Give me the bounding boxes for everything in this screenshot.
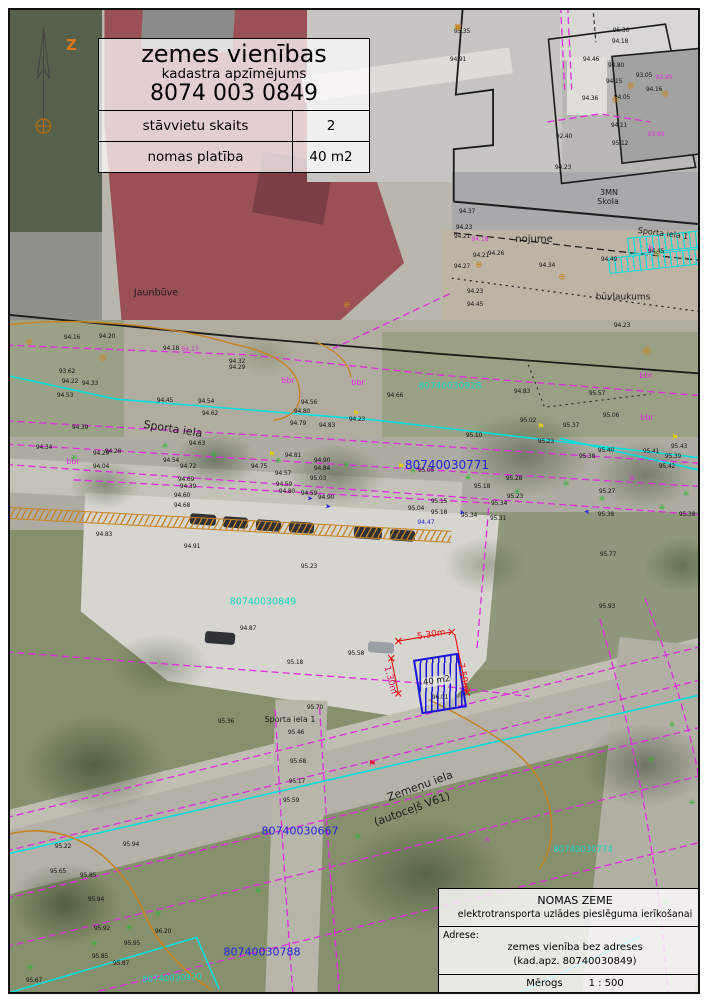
elevation-label: 94.81 [285,453,301,459]
elevation-label: 95.18 [431,510,447,516]
elevation-label: 95.23 [301,564,317,570]
elevation-label: 94.27 [454,264,470,270]
elevation-label: 95.77 [600,552,616,558]
elevation-label: 94.46 [583,57,599,63]
elevation-label: 94.26 [488,251,504,257]
street-label: nojume [515,235,552,245]
elevation-label: 95.46 [288,730,304,736]
elevation-label: 94.54 [198,399,214,405]
elevation-label: 94.45 [467,302,483,308]
elevation-label: 94.80 [294,409,310,415]
survey-note-label: bbr [281,377,294,385]
elevation-label: 94.45 [157,398,173,404]
elevation-label: 94.83 [96,532,112,538]
manhole-icon: ⊕ [611,97,619,106]
elevation-label: 94.62 [202,411,218,417]
elevation-label: 94.34 [539,263,555,269]
lamp-icon: ⚑ [397,463,404,471]
elevation-label: 95.94 [88,897,104,903]
elevation-label: 94.87 [240,626,256,632]
elevation-label: 95.94 [123,842,139,848]
elevation-label: 94.66 [387,393,403,399]
elevation-label: 94.18 [163,346,179,352]
tree-icon: ✳ [342,462,350,471]
tree-icon: ✳ [598,496,606,505]
elevation-label: 95.42 [659,464,675,470]
flow-arrow-icon: ➤ [584,507,591,515]
address-line1: zemes vienība bez adreses [443,941,700,955]
survey-note-label: 94.17 [181,347,198,353]
elevation-label: 94.57 [275,471,291,477]
parcel-number: 80740030774 [553,846,613,855]
tree-icon: ✳ [210,452,218,461]
survey-note-label: a [485,836,490,844]
elevation-label: 95.39 [665,454,681,460]
survey-note-label: 94.18 [471,237,488,243]
elevation-label: 95.38 [579,454,595,460]
elevation-label: 95.06 [603,413,619,419]
elevation-label: 94.28 [105,449,121,455]
elevation-label: 94.20 [99,334,115,340]
elevation-label: 94.16 [646,87,662,93]
title-row-parking: stāvvietu skaits 2 [99,110,369,141]
elevation-label: 94.23 [614,323,630,329]
street-label: Sporta iela [143,419,203,439]
elevation-label: 95.67 [26,978,42,984]
info-address-section: Adrese: zemes vienība bez adreses (kad.a… [439,927,700,975]
lease-area-value: 40 m2 [292,142,369,172]
elevation-label: 95.28 [506,476,522,482]
elevation-label: 95.43 [671,444,687,450]
elevation-label: 94.37 [459,209,475,215]
parcel-number: 80740030788 [224,947,301,958]
elevation-label: 94.72 [180,464,196,470]
elevation-label: 94.15 [606,79,622,85]
elevation-label: 94.04 [93,464,109,470]
elevation-label: 95.34 [491,501,507,507]
elevation-label: 94.47 [417,520,434,526]
elevation-label: 95.58 [348,651,364,657]
elevation-label: 94.21 [473,253,489,259]
tree-icon: ✳ [70,455,78,464]
elevation-label: 94.39 [72,425,88,431]
flow-arrow-icon: ➤ [459,509,466,517]
parcel-number: 80740030771 [405,459,489,471]
elevation-label: 95.65 [50,869,66,875]
manhole-icon: ⊕ [558,274,566,283]
elevation-label: 94.16 [64,335,80,341]
elevation-label: 95.92 [94,926,110,932]
elevation-label: 94.22 [62,379,78,385]
elevation-label: 94.11 [611,123,627,129]
survey-note-label: 93.99 [647,132,664,138]
elevation-label: 93.05 [636,73,652,79]
info-subtitle: elektrotransporta uzlādes pieslēguma ier… [443,909,700,920]
tree-icon: ✳ [26,965,34,974]
elevation-label: 95.37 [563,423,579,429]
elevation-label: 96.01 [432,695,448,701]
elevation-label: 95.85 [92,954,108,960]
title-block-header: zemes vienības kadastra apzīmējums 8074 … [99,39,369,110]
info-block-header: NOMAS ZEME elektrotransporta uzlādes pie… [439,889,700,927]
street-label: Sporta iela 1 [637,227,688,241]
tree-icon: ✳ [354,834,362,843]
elevation-label: 94.91 [450,57,466,63]
elevation-label: 95.36 [613,28,629,34]
tree-icon: ✳ [125,925,133,934]
utility-box-icon: ▣ [454,23,462,31]
street-label: būvlaukums [596,294,651,303]
elevation-label: 95.15 [431,499,447,505]
street-label: 3MN [600,189,618,197]
elevation-label: 95.12 [612,141,628,147]
elevation-label: 95.93 [599,604,615,610]
manhole-icon: ⊕ [653,251,661,260]
elevation-label: 95.95 [124,941,140,947]
survey-note-label: a [630,474,635,482]
elevation-label: 94.34 [36,445,52,451]
elevation-label: 95.87 [113,961,129,967]
elevation-label: 94.36 [582,96,598,102]
manhole-icon: ⊕ [661,91,669,100]
elevation-label: 94.29 [229,365,245,371]
hydrant-icon: ⚑ [368,761,376,770]
elevation-label: 94.18 [612,39,628,45]
cadastral-map-page: 40 m2 5.30m 7.50m 1.30m 95.3594.9195.369… [0,0,706,1000]
elevation-label: 94.21 [454,234,470,240]
title-line2: kadastra apzīmējums [99,67,369,82]
elevation-label: 94.83 [319,423,335,429]
elevation-label: 94.60 [174,493,190,499]
tree-icon: ✳ [254,888,262,897]
tree-icon: ✳ [513,489,521,498]
tree-icon: ✳ [161,443,169,452]
elevation-label: 95.03 [310,476,326,482]
street-label: Jaunbūve [134,288,178,298]
survey-note-label: 92.95 [655,75,672,81]
scale-row: Mērogs 1 : 500 [439,975,700,992]
elevation-label: 92.40 [556,134,572,140]
elevation-label: 94.23 [555,165,571,171]
lamp-icon: ⚑ [671,434,678,442]
tree-icon: ✳ [409,468,417,477]
manhole-icon: ⊕ [99,355,107,364]
elevation-label: 95.17 [289,779,305,785]
tree-icon: ✳ [464,475,472,484]
parcel-number: 80740030928 [419,383,482,392]
cadastre-number: 8074 003 0849 [99,82,369,106]
parcel-number: 80740030849 [230,597,297,607]
flow-arrow-icon: ➤ [307,495,314,503]
tree-icon: ✳ [154,911,162,920]
parking-count-label: stāvvietu skaits [99,118,292,134]
manhole-icon: ⊕ [475,262,483,271]
manhole-icon: ⊕ [25,339,33,348]
elevation-label: 95.10 [466,433,482,439]
elevation-label: 94.80 [279,489,295,495]
elevation-label: 94.63 [189,441,205,447]
elevation-label: 95.41 [643,449,659,455]
info-block: NOMAS ZEME elektrotransporta uzlādes pie… [438,888,700,993]
elevation-label: 95.23 [538,439,554,445]
elevation-label: 95.18 [474,484,490,490]
elevation-label: 95.38 [598,512,614,518]
elevation-label: 94.90 [318,495,334,501]
elevation-label: 94.54 [163,458,179,464]
elevation-label: 94.68 [174,503,190,509]
lamp-icon: ⚑ [268,451,275,459]
elevation-label: 94.91 [184,544,200,550]
tree-icon: ✳ [688,800,696,809]
manhole-icon: ⊕ [627,83,635,92]
elevation-label: 95.38 [679,512,695,518]
elevation-label: 95.59 [283,798,299,804]
tree-icon: ✳ [90,941,98,950]
elevation-label: 94.39 [180,484,196,490]
elevation-label: 95.04 [408,506,424,512]
lease-area-label-row: nomas platība [99,149,292,165]
elevation-label: 95.85 [80,873,96,879]
elevation-label: 94.23 [456,225,472,231]
scale-label: Mērogs [526,978,562,989]
elevation-label: 94.33 [82,381,98,387]
elevation-label: 95.22 [55,844,71,850]
elevation-label: 94.90 [314,458,330,464]
elevation-label: 95.31 [490,516,506,522]
map-frame: 40 m2 5.30m 7.50m 1.30m 95.3594.9195.369… [8,8,700,994]
elevation-label: 94.79 [290,421,306,427]
elevation-label: 93.62 [59,369,75,375]
street-label: Sporta iela 1 [265,716,316,724]
tree-icon: ✳ [668,722,676,731]
survey-note-label: bbr [351,379,364,387]
tree-icon: ✳ [658,505,666,514]
elevation-label: 95.02 [520,418,536,424]
elevation-label: 94.23 [467,289,483,295]
survey-note-label: bbr [640,414,653,422]
title-block: zemes vienības kadastra apzīmējums 8074 … [98,38,370,173]
elevation-label: 95.70 [307,705,323,711]
manhole-icon: ⊕ [343,302,351,311]
elevation-label: 94.56 [301,400,317,406]
elevation-label: 94.80 [608,63,624,69]
elevation-label: 94.53 [57,393,73,399]
manhole-icon: ⊕ [642,345,652,357]
elevation-label: 95.57 [589,391,605,397]
elevation-label: 95.36 [218,719,234,725]
title-row-area: nomas platība 40 m2 [99,141,369,172]
tree-icon: ✳ [647,757,655,766]
elevation-label: 94.84 [314,466,330,472]
title-line1: zemes vienības [99,42,369,67]
scale-value: 1 : 500 [589,978,624,989]
elevation-label: 95.18 [287,660,303,666]
address-line2: (kad.apz. 80740030849) [443,955,700,969]
flow-arrow-icon: ➤ [325,503,332,511]
north-label: Z [66,36,77,54]
elevation-label: 94.83 [514,389,530,395]
tree-icon: ✳ [699,712,700,721]
elevation-label: 94.75 [251,464,267,470]
lamp-icon: ⚑ [537,423,544,431]
elevation-label: 95.68 [290,759,306,765]
elevation-label: 96.20 [155,929,171,935]
tree-icon: ✳ [562,481,570,490]
survey-note-label: bbr [639,372,652,380]
parking-count-value: 2 [292,111,369,141]
lamp-icon: ⚑ [352,410,359,418]
parcel-number: 80740030930 [142,973,202,985]
street-label: Skola [597,198,618,206]
elevation-label: 95.40 [598,448,614,454]
elevation-label: 94.49 [601,257,617,263]
tree-icon: ✳ [682,491,690,500]
parcel-number: 80740030667 [262,826,339,837]
info-title: NOMAS ZEME [443,894,700,907]
address-label: Adrese: [443,930,700,941]
